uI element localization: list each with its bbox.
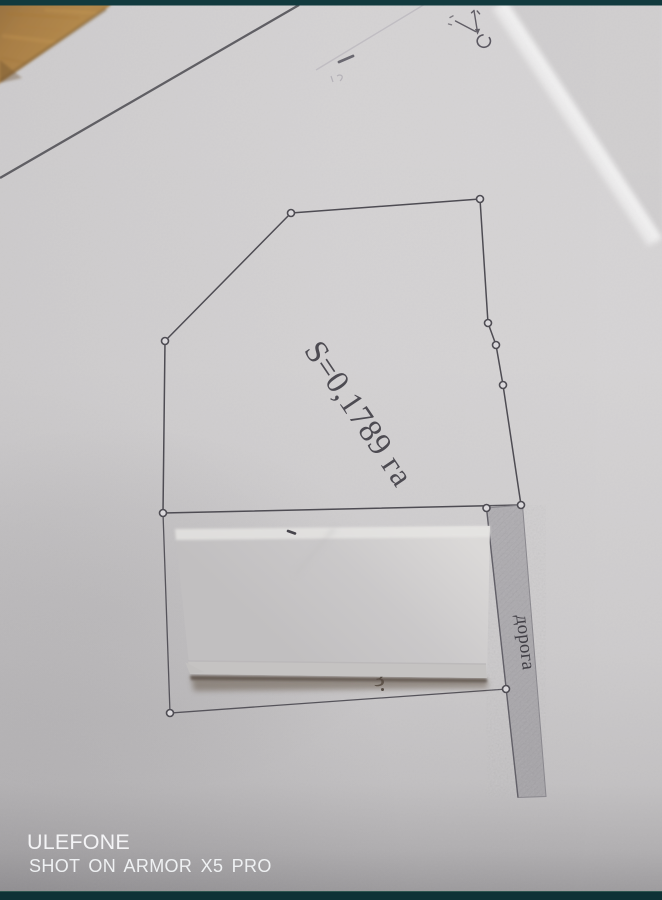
svg-text:ULEFONE: ULEFONE (27, 830, 130, 854)
svg-text:SHOT ON ARMOR X5 PRO: SHOT ON ARMOR X5 PRO (29, 856, 272, 876)
